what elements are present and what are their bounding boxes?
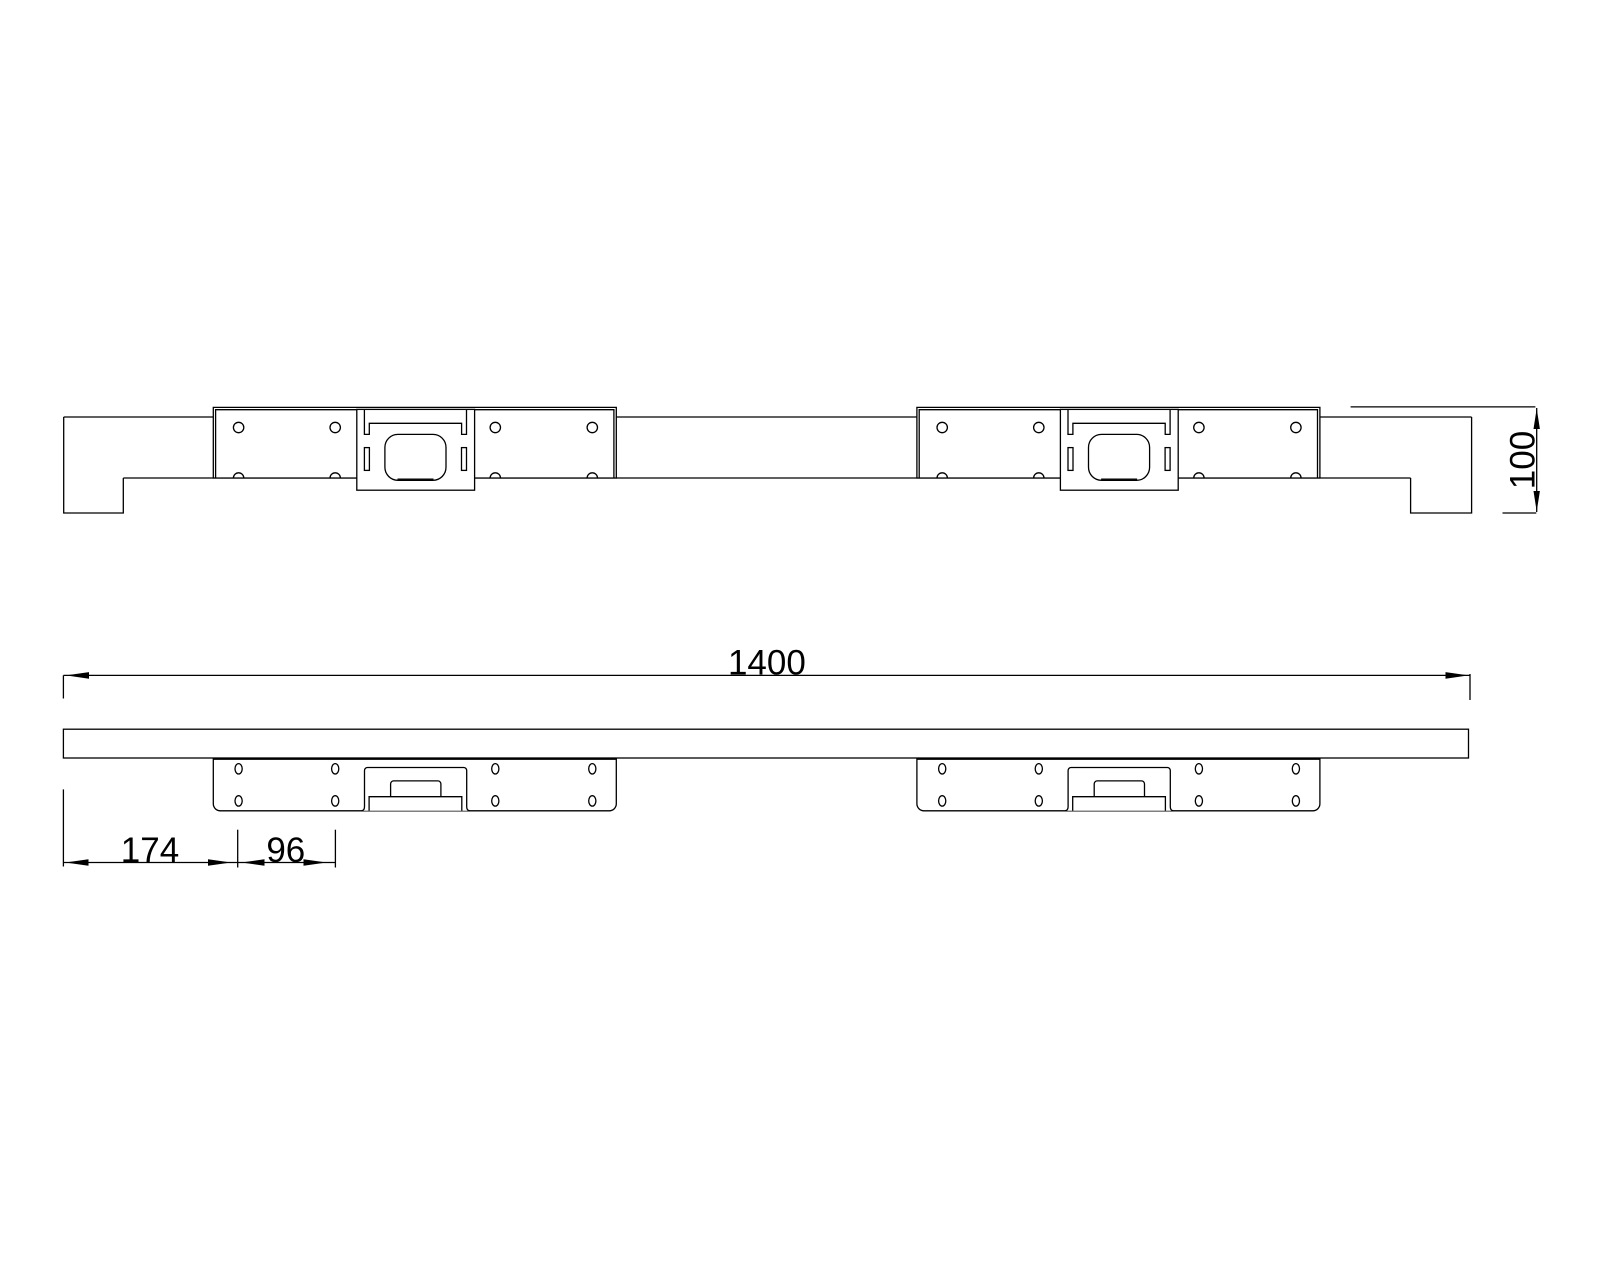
svg-text:100: 100	[1503, 431, 1542, 489]
svg-text:1400: 1400	[728, 643, 806, 682]
svg-text:96: 96	[266, 831, 305, 870]
svg-text:174: 174	[121, 831, 179, 870]
